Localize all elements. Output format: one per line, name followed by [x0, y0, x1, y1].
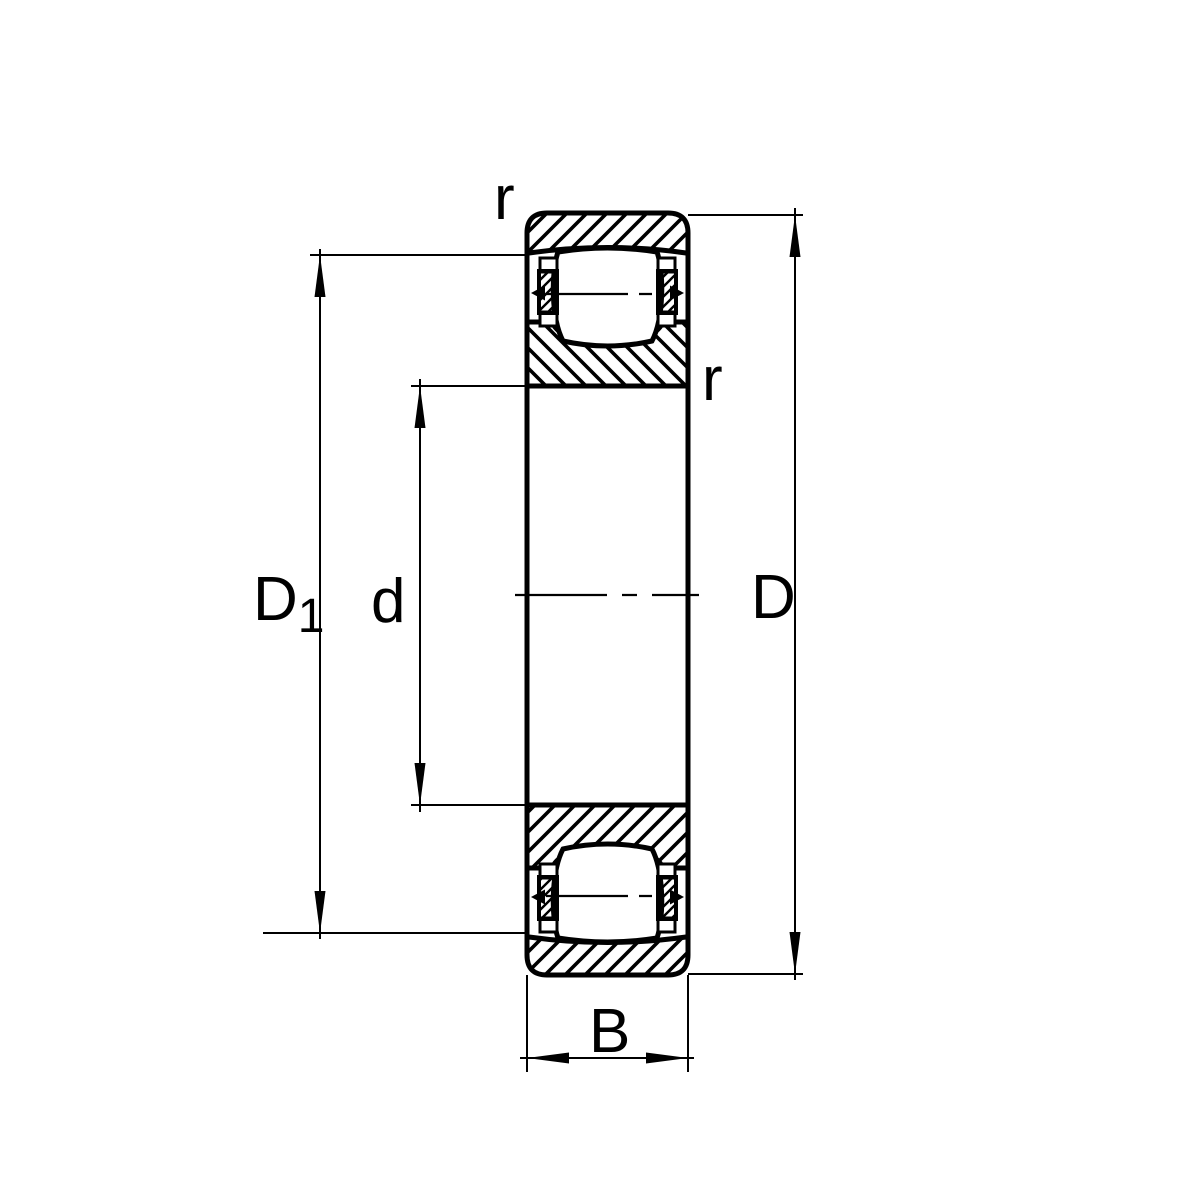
barrel-roller-bottom	[553, 844, 661, 942]
bearing-drawing-canvas: D1 d D B r	[0, 0, 1200, 1200]
label-outer-diameter: D	[751, 563, 796, 632]
label-chamfer-radius-top: r	[494, 164, 515, 233]
label-bore-diameter: d	[371, 567, 405, 636]
bearing-body	[515, 213, 699, 975]
label-width: B	[589, 997, 630, 1066]
label-raceway-diameter-subscript: 1	[298, 590, 325, 643]
bearing-cross-section-diagram: D1 d D B r	[0, 0, 1200, 1200]
label-raceway-diameter-main: D	[253, 565, 298, 634]
label-chamfer-radius-side: r	[702, 345, 723, 414]
barrel-roller-top	[553, 248, 661, 346]
